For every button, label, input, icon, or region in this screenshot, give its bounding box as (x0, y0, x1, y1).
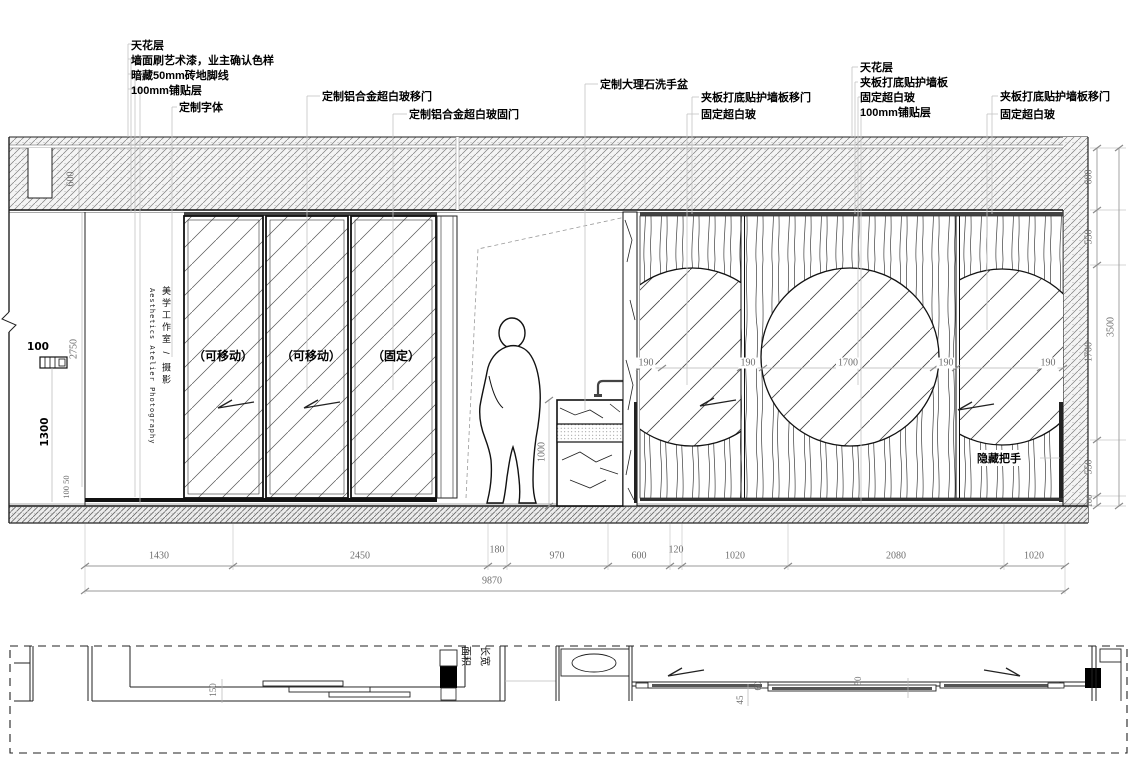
annotation-label: 墙面刷艺术漆，业主确认色样 (131, 55, 274, 67)
dim-wood: 190 (937, 358, 956, 369)
plan-column (440, 666, 457, 688)
dim-right: 550 (1084, 460, 1095, 475)
annotation-label: 100mm铺贴层 (131, 85, 202, 97)
faucet (598, 381, 623, 396)
slide-arrow-icon (984, 668, 1020, 676)
dim-right: 550 (1084, 230, 1095, 245)
signage-box (40, 357, 67, 368)
annotation-label: 定制大理石洗手盆 (600, 79, 688, 91)
annotation-label: 固定超白玻 (1000, 109, 1055, 121)
hidden-handle-groove (634, 402, 637, 503)
studio-name-en: Aesthetics Atelier Photography (148, 288, 156, 473)
dim-bottom: 120 (669, 545, 684, 556)
plan-column (1085, 668, 1101, 688)
annotation-label: 100mm铺贴层 (860, 107, 931, 119)
floor-track (85, 498, 437, 502)
annotation-label: 固定超白玻 (860, 92, 915, 104)
annotation-label: 夹板打底贴护墙板移门 (701, 92, 811, 104)
dim-bottom-total: 9870 (482, 576, 502, 587)
bottom-dimension-chain (81, 524, 1069, 594)
panel-label-movable-2: （可移动） (281, 347, 341, 364)
annotation-label: 定制字体 (179, 102, 223, 114)
annotation-label: 天花层 (131, 40, 164, 52)
dim-bottom: 2450 (350, 551, 370, 562)
dim-right: 100 (1084, 495, 1094, 508)
panel-label-movable-1: （可移动） (193, 347, 253, 364)
annotation-label: 夹板打底贴护墙板 (860, 77, 948, 89)
plan-rotated-label: 长宽 (479, 646, 494, 666)
dim-wood: 1700 (836, 358, 860, 369)
middle-zone (466, 212, 637, 506)
dim-wall-height: 2750 (69, 339, 80, 359)
ceiling-band (9, 137, 1088, 213)
dim-bottom: 2080 (886, 551, 906, 562)
dim-plan: 150 (208, 683, 218, 697)
dim-plan: 50 (853, 677, 863, 686)
plan-sliding-doors (636, 682, 1064, 691)
annotation-label: 暗藏50mm砖地脚线 (131, 70, 229, 82)
plan-slat (289, 687, 370, 692)
annotation-label: 定制铝合金超白玻固门 (409, 109, 519, 121)
dim-bottom: 600 (632, 551, 647, 562)
dim-sign-width: 100 (27, 341, 49, 353)
studio-name-cn: 美学工作室 / 摄影 (160, 286, 173, 461)
dim-bottom: 1430 (149, 551, 169, 562)
dim-bottom: 180 (490, 545, 505, 556)
plan-slat (263, 681, 343, 686)
annotation-label: 天花层 (860, 62, 893, 74)
annotation-label: 夹板打底贴护墙板移门 (1000, 91, 1110, 103)
dim-right-total: 3500 (1106, 317, 1117, 337)
dim-right: 1700 (1084, 342, 1095, 362)
dim-bottom: 970 (550, 551, 565, 562)
human-figure (480, 318, 541, 503)
annotation-label: 固定超白玻 (701, 109, 756, 121)
dim-basin-height: 1000 (537, 442, 548, 462)
marble-basin (557, 381, 623, 506)
fixed-glass-strip (437, 216, 457, 498)
plan-view (10, 646, 1127, 753)
plan-basin (556, 646, 632, 701)
slide-arrow-icon (668, 668, 704, 676)
dim-ceiling-height: 600 (66, 172, 77, 187)
hidden-handle-groove (1059, 402, 1063, 502)
plan-dashed-border (10, 646, 1127, 753)
dim-plan: 60 (753, 682, 763, 691)
dim-wood: 190 (637, 358, 656, 369)
cad-drawing-canvas: 天花层 墙面刷艺术漆，业主确认色样 暗藏50mm砖地脚线 100mm铺贴层 定制… (0, 0, 1131, 761)
dim-base: 100 50 (61, 475, 71, 498)
annotation-label: 定制铝合金超白玻移门 (322, 91, 432, 103)
dim-sign-height: 1300 (39, 417, 51, 446)
panel-label-fixed: （固定） (372, 347, 420, 364)
ceiling-light-trough (28, 148, 52, 198)
dim-right: 600 (1084, 170, 1095, 185)
plan-slat (329, 692, 410, 697)
dim-bottom: 1020 (725, 551, 745, 562)
plan-rotated-label: 面积 (460, 646, 475, 666)
dim-plan: 45 (735, 696, 745, 705)
dim-wood: 190 (739, 358, 758, 369)
dim-wood: 190 (1039, 358, 1058, 369)
break-line (2, 312, 16, 332)
dim-bottom: 1020 (1024, 551, 1044, 562)
hidden-handle-label: 隐藏把手 (976, 450, 1022, 466)
